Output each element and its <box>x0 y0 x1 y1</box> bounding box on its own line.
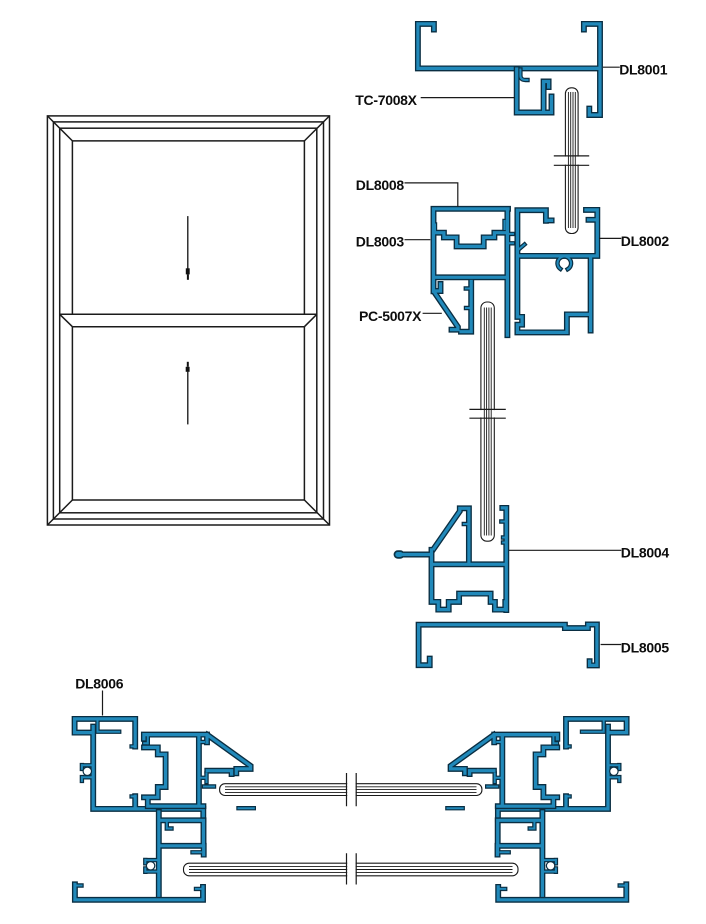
svg-text:DL8003: DL8003 <box>356 233 405 249</box>
svg-text:DL8008: DL8008 <box>356 177 405 193</box>
svg-text:PC-5007X: PC-5007X <box>359 308 422 324</box>
svg-text:DL8006: DL8006 <box>75 676 124 692</box>
svg-text:TC-7008X: TC-7008X <box>355 92 417 108</box>
svg-text:DL8004: DL8004 <box>621 544 670 560</box>
svg-text:DL8001: DL8001 <box>619 62 668 78</box>
svg-text:DL8002: DL8002 <box>621 233 670 249</box>
svg-text:DL8005: DL8005 <box>621 639 670 655</box>
